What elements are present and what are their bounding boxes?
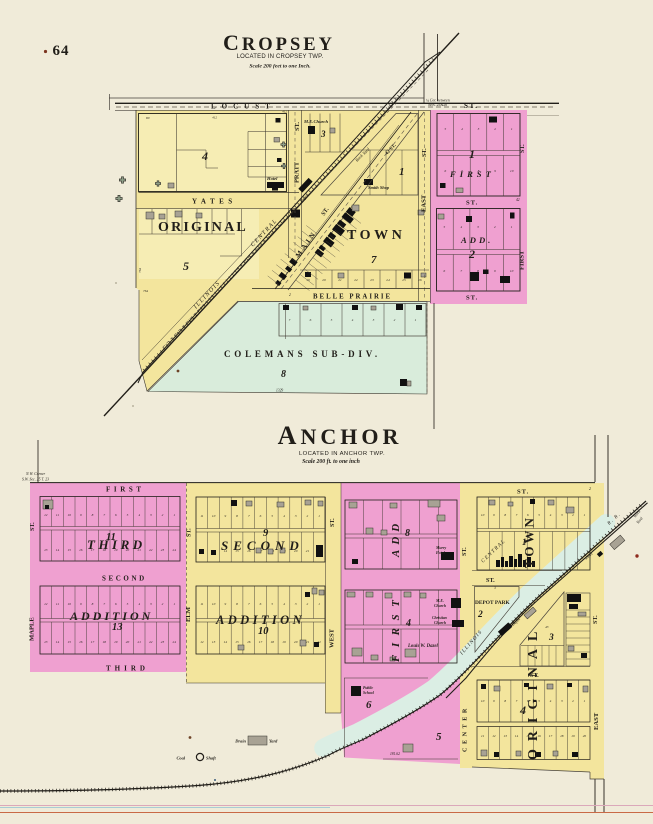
svg-text:21: 21 (338, 278, 342, 282)
svg-text:6: 6 (310, 318, 312, 322)
svg-text:1: 1 (415, 318, 417, 322)
svg-text:ST.: ST. (329, 518, 336, 527)
svg-text:6: 6 (115, 513, 117, 517)
svg-text:Shaft: Shaft (206, 756, 217, 761)
svg-text:5: 5 (127, 513, 129, 517)
svg-text:ST.: ST. (421, 148, 428, 157)
svg-text:PRATT: PRATT (294, 161, 301, 183)
svg-text:4: 4 (138, 513, 140, 517)
svg-text:25: 25 (402, 278, 406, 282)
svg-text:FIRST: FIRST (449, 169, 495, 179)
svg-text:16: 16 (79, 548, 83, 552)
svg-text:7: 7 (248, 514, 250, 518)
svg-text:15: 15 (235, 640, 239, 644)
svg-text:22: 22 (354, 278, 358, 282)
svg-text:24: 24 (386, 278, 390, 282)
svg-text:8: 8 (281, 369, 286, 380)
svg-text:2: 2 (494, 225, 496, 229)
svg-text:7: 7 (460, 269, 462, 273)
svg-text:4: 4 (461, 127, 463, 131)
svg-text:10: 10 (212, 602, 216, 606)
svg-text:11: 11 (56, 513, 59, 517)
svg-text:4: 4 (405, 618, 411, 629)
svg-text:Hotel: Hotel (266, 176, 278, 181)
svg-text:Scale 200 ft. to one inch: Scale 200 ft. to one inch (302, 459, 360, 465)
svg-text:ST.: ST. (466, 295, 478, 302)
svg-text:4: 4 (519, 703, 526, 717)
svg-text:18: 18 (103, 640, 107, 644)
svg-text:Coal: Coal (176, 756, 185, 761)
svg-text:ANCHOR: ANCHOR (278, 421, 403, 450)
svg-text:FIRST: FIRST (390, 593, 402, 663)
svg-text:19: 19 (114, 640, 118, 644)
svg-text:ELM: ELM (185, 606, 192, 622)
svg-text:4: 4 (550, 513, 552, 517)
svg-text:6: 6 (115, 602, 117, 606)
svg-text:ST.: ST. (517, 489, 529, 496)
svg-text:ST.: ST. (466, 200, 478, 207)
svg-text:EAST: EAST (593, 712, 600, 730)
svg-text:LOCATED IN ANCHOR TWP.: LOCATED IN ANCHOR TWP. (299, 451, 385, 457)
svg-text:3: 3 (150, 602, 152, 606)
svg-text:8: 8 (92, 602, 94, 606)
svg-text:ORIGINAL: ORIGINAL (526, 624, 541, 760)
svg-text:14: 14 (56, 548, 60, 552)
svg-text:3: 3 (478, 127, 480, 131)
svg-text:2: 2 (494, 127, 496, 131)
svg-text:6: 6 (260, 514, 262, 518)
svg-text:4: 4 (550, 699, 552, 703)
svg-text:14: 14 (515, 734, 519, 738)
svg-text:11: 11 (56, 602, 59, 606)
svg-text:4: 4 (283, 602, 285, 606)
svg-text:2: 2 (468, 247, 475, 261)
svg-text:5: 5 (436, 731, 442, 743)
svg-text:764: 764 (143, 289, 148, 293)
svg-text:8: 8 (236, 514, 238, 518)
svg-text:2: 2 (162, 602, 164, 606)
svg-text:13: 13 (504, 734, 508, 738)
svg-text:22: 22 (149, 548, 153, 552)
svg-text:1: 1 (318, 514, 320, 518)
svg-text:SECOND: SECOND (221, 538, 304, 553)
svg-text:2: 2 (572, 513, 574, 517)
svg-text:ST.: ST. (29, 522, 36, 531)
svg-text:9: 9 (493, 513, 495, 517)
svg-text:1: 1 (469, 147, 475, 161)
svg-text:4: 4 (352, 318, 354, 322)
svg-text:ADDITION: ADDITION (215, 613, 305, 627)
svg-text:ORIGINAL: ORIGINAL (158, 220, 248, 235)
svg-text:TOWN: TOWN (347, 228, 406, 243)
svg-text:10: 10 (510, 169, 514, 173)
svg-text:7: 7 (248, 602, 250, 606)
svg-text:THIRD: THIRD (106, 665, 149, 673)
svg-text:10: 10 (68, 602, 72, 606)
svg-text:Public: Public (363, 686, 373, 690)
svg-text:5: 5 (444, 225, 446, 229)
svg-text:18: 18 (271, 640, 275, 644)
svg-text:3: 3 (295, 514, 297, 518)
svg-text:9: 9 (80, 602, 82, 606)
svg-text:4: 4 (138, 602, 140, 606)
svg-text:17: 17 (91, 640, 95, 644)
svg-text:SECOND: SECOND (102, 575, 147, 583)
svg-text:3: 3 (295, 602, 297, 606)
svg-text:8: 8 (405, 528, 410, 539)
svg-text:ST.: ST. (186, 528, 193, 537)
svg-text:18: 18 (560, 734, 564, 738)
svg-text:412: 412 (212, 116, 217, 120)
svg-text:1: 1 (584, 699, 586, 703)
svg-text:ST.: ST. (461, 547, 468, 556)
svg-text:2: 2 (307, 602, 309, 606)
svg-text:5: 5 (538, 513, 540, 517)
svg-text:M.E.Church: M.E.Church (303, 119, 328, 124)
svg-text:22: 22 (149, 640, 153, 644)
svg-text:24: 24 (173, 548, 177, 552)
svg-text:5: 5 (127, 602, 129, 606)
svg-text:1: 1 (511, 127, 513, 131)
svg-text:7: 7 (103, 602, 105, 606)
svg-text:8: 8 (504, 513, 506, 517)
svg-text:ST.: ST. (294, 122, 301, 131)
svg-text:21: 21 (306, 549, 310, 553)
svg-text:3: 3 (561, 699, 563, 703)
svg-text:2: 2 (307, 514, 309, 518)
svg-text:ADD.: ADD. (460, 235, 493, 245)
svg-text:Secs. 25&26: Secs. 25&26 (428, 103, 447, 107)
svg-text:5: 5 (271, 602, 273, 606)
svg-text:M.E.: M.E. (435, 599, 444, 603)
svg-text:Hotel: Hotel (435, 551, 446, 555)
svg-text:Smith Shop: Smith Shop (368, 185, 390, 190)
svg-text:MAPLE: MAPLE (29, 617, 36, 641)
svg-text:7: 7 (103, 513, 105, 517)
svg-text:23: 23 (161, 548, 165, 552)
svg-text:TOWN: TOWN (522, 515, 537, 568)
svg-text:1: 1 (584, 513, 586, 517)
svg-text:19: 19 (571, 734, 575, 738)
svg-text:10: 10 (481, 699, 485, 703)
svg-text:14: 14 (224, 640, 228, 644)
svg-text:LOCUST: LOCUST (211, 103, 276, 111)
svg-text:1: 1 (511, 225, 513, 229)
svg-text:COLEMANS SUB-DIV.: COLEMANS SUB-DIV. (224, 349, 381, 359)
svg-text:7: 7 (289, 318, 291, 322)
svg-text:9: 9 (493, 699, 495, 703)
svg-text:6: 6 (444, 169, 446, 173)
svg-text:4: 4 (460, 225, 462, 229)
svg-text:ST.: ST. (486, 577, 495, 584)
svg-text:2: 2 (589, 486, 591, 491)
svg-text:11: 11 (200, 514, 203, 518)
svg-text:10: 10 (212, 514, 216, 518)
svg-text:8: 8 (92, 513, 94, 517)
svg-text:CENTER: CENTER (462, 705, 469, 752)
svg-text:2: 2 (162, 513, 164, 517)
svg-text:20: 20 (583, 734, 587, 738)
svg-text:13: 13 (112, 622, 123, 633)
svg-text:5: 5 (444, 127, 446, 131)
svg-text:26: 26 (418, 278, 422, 282)
svg-text:Scale 200 feet to one Inch.: Scale 200 feet to one Inch. (249, 64, 310, 70)
svg-text:11: 11 (200, 602, 203, 606)
svg-text:13: 13 (44, 548, 48, 552)
svg-text:6: 6 (260, 602, 262, 606)
svg-text:412: 412 (282, 110, 287, 114)
svg-text:6: 6 (366, 699, 372, 711)
svg-text:FIRST: FIRST (519, 250, 526, 270)
svg-text:64: 64 (53, 43, 70, 59)
svg-text:4: 4 (201, 149, 208, 163)
svg-text:Church: Church (434, 604, 446, 608)
svg-text:16: 16 (247, 640, 251, 644)
svg-text:2: 2 (289, 293, 291, 297)
svg-text:23: 23 (370, 278, 374, 282)
svg-text:181.62: 181.62 (390, 752, 400, 756)
svg-text:Christian: Christian (432, 616, 447, 620)
svg-text:2: 2 (477, 610, 483, 620)
svg-text:9: 9 (224, 602, 226, 606)
svg-text:12: 12 (200, 640, 204, 644)
svg-text:3: 3 (548, 633, 554, 643)
svg-text:BELLE PRAIRIE: BELLE PRAIRIE (313, 294, 392, 301)
svg-text:5: 5 (183, 259, 189, 273)
svg-text:ST.: ST. (519, 144, 526, 153)
svg-text:42: 42 (516, 198, 520, 202)
svg-text:ADDITION: ADDITION (69, 609, 153, 623)
svg-text:80: 80 (146, 116, 150, 120)
svg-text:Murry: Murry (435, 546, 446, 550)
svg-text:15: 15 (68, 548, 72, 552)
svg-text:43: 43 (545, 625, 549, 629)
svg-text:13: 13 (212, 640, 216, 644)
svg-text:5: 5 (271, 514, 273, 518)
svg-text:20: 20 (294, 640, 298, 644)
svg-text:Yard: Yard (269, 739, 278, 744)
svg-text:10: 10 (68, 513, 72, 517)
svg-text:1: 1 (173, 602, 175, 606)
svg-text:9: 9 (80, 513, 82, 517)
svg-text:6: 6 (444, 269, 446, 273)
svg-text:N.W. Corner: N.W. Corner (25, 472, 46, 476)
svg-text:1: 1 (318, 602, 320, 606)
svg-text:DEPOT PARK: DEPOT PARK (475, 600, 510, 606)
svg-text:ADD: ADD (390, 519, 402, 558)
svg-text:¼ Cor. between: ¼ Cor. between (426, 99, 450, 103)
svg-text:12: 12 (44, 602, 48, 606)
svg-text:4: 4 (283, 514, 285, 518)
svg-text:YATES: YATES (192, 198, 237, 206)
svg-text:EAST: EAST (421, 194, 428, 212)
svg-text:17: 17 (549, 734, 553, 738)
svg-text:11: 11 (481, 734, 484, 738)
svg-text:9: 9 (494, 269, 496, 273)
svg-text:7: 7 (371, 254, 377, 266)
svg-text:17: 17 (259, 640, 263, 644)
svg-text:7: 7 (516, 699, 518, 703)
svg-text:3: 3 (561, 513, 563, 517)
svg-text:7: 7 (516, 513, 518, 517)
svg-text:1329: 1329 (276, 389, 283, 393)
svg-text:19: 19 (282, 640, 286, 644)
svg-text:Drain: Drain (234, 739, 246, 744)
svg-text:23: 23 (161, 640, 165, 644)
svg-text:ST.: ST. (592, 615, 599, 624)
svg-text:13: 13 (44, 640, 48, 644)
svg-text:3: 3 (150, 513, 152, 517)
svg-text:14: 14 (56, 640, 60, 644)
svg-text:3: 3 (477, 225, 479, 229)
svg-text:Church: Church (434, 621, 446, 625)
svg-text:1: 1 (399, 166, 405, 178)
svg-text:764: 764 (138, 268, 142, 273)
svg-text:3: 3 (320, 129, 326, 139)
svg-text:20: 20 (126, 640, 130, 644)
svg-text:21: 21 (138, 640, 142, 644)
svg-text:8: 8 (504, 699, 506, 703)
svg-text:10: 10 (481, 513, 485, 517)
svg-text:10: 10 (510, 269, 514, 273)
svg-text:LOCATED IN CROPSEY TWP.: LOCATED IN CROPSEY TWP. (237, 54, 324, 60)
svg-text:School: School (363, 691, 375, 695)
svg-text:ST.: ST. (464, 102, 479, 110)
svg-text:24: 24 (173, 640, 177, 644)
svg-text:WEST: WEST (329, 628, 336, 648)
svg-text:9: 9 (224, 514, 226, 518)
svg-text:16: 16 (79, 640, 83, 644)
svg-text:21: 21 (306, 640, 310, 644)
svg-text:12: 12 (44, 513, 48, 517)
svg-text:20: 20 (322, 278, 326, 282)
svg-text:12: 12 (492, 734, 496, 738)
svg-text:Louis W. Dazel: Louis W. Dazel (407, 644, 438, 649)
svg-text:10: 10 (258, 626, 269, 637)
svg-text:S.W. Sec. 25 T. 23: S.W. Sec. 25 T. 23 (22, 478, 49, 482)
svg-text:3: 3 (373, 318, 375, 322)
svg-text:5: 5 (331, 318, 333, 322)
svg-text:2: 2 (572, 699, 574, 703)
svg-text:15: 15 (68, 640, 72, 644)
svg-text:1: 1 (173, 513, 175, 517)
svg-text:THIRD: THIRD (87, 537, 146, 552)
svg-text:FIRST: FIRST (106, 486, 145, 494)
svg-text:8: 8 (236, 602, 238, 606)
svg-text:2: 2 (394, 318, 396, 322)
